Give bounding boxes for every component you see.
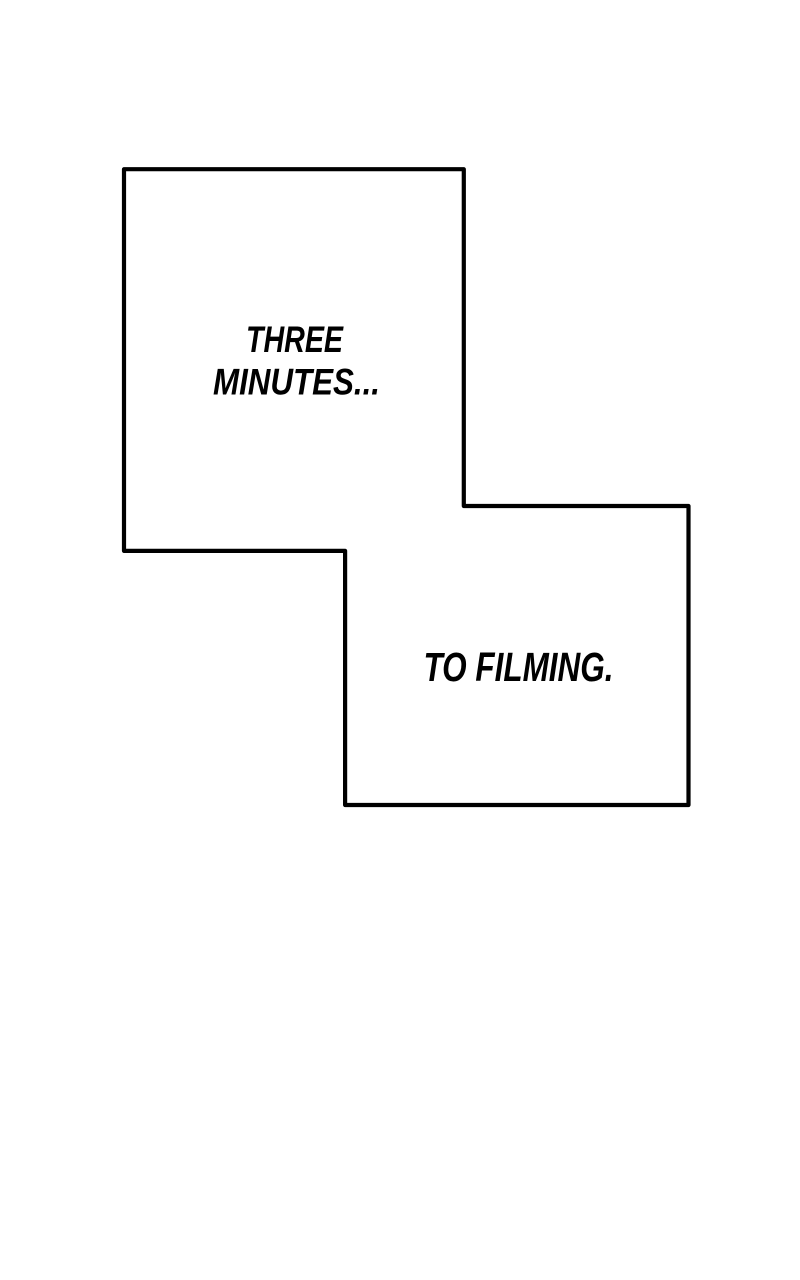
svg-text:THREE: THREE — [246, 318, 344, 360]
svg-text:TO FILMING.: TO FILMING. — [424, 644, 614, 690]
svg-text:MINUTES...: MINUTES... — [213, 361, 380, 403]
